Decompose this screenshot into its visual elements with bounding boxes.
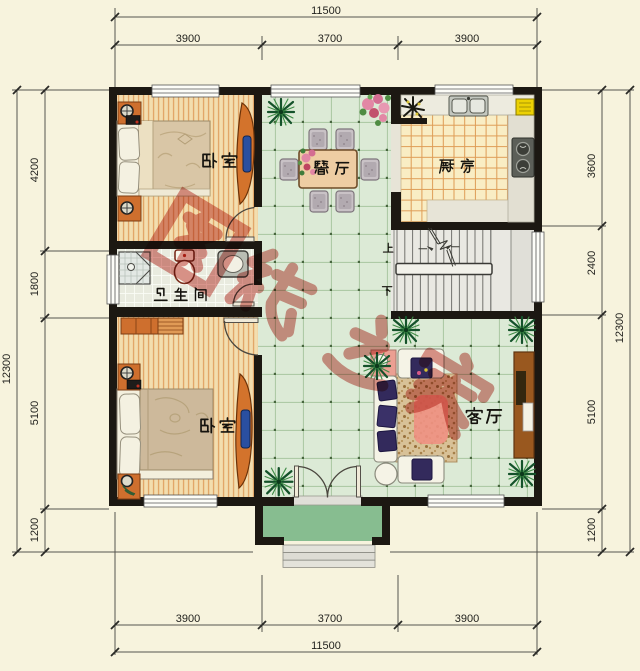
svg-text:5100: 5100 (586, 400, 598, 424)
svg-text:1200: 1200 (586, 518, 598, 542)
svg-text:11500: 11500 (311, 640, 341, 652)
svg-text:1200: 1200 (29, 518, 41, 542)
svg-text:3900: 3900 (455, 613, 479, 625)
svg-text:1800: 1800 (29, 272, 41, 296)
svg-text:3900: 3900 (176, 613, 200, 625)
svg-text:3700: 3700 (318, 33, 342, 45)
svg-text:5100: 5100 (29, 401, 41, 425)
svg-text:2400: 2400 (586, 251, 598, 275)
svg-text:12300: 12300 (614, 313, 626, 344)
svg-text:3600: 3600 (586, 154, 598, 178)
svg-text:12300: 12300 (1, 354, 13, 385)
svg-text:3700: 3700 (318, 613, 342, 625)
svg-text:11500: 11500 (311, 5, 341, 17)
svg-text:3900: 3900 (455, 33, 479, 45)
svg-text:4200: 4200 (29, 158, 41, 182)
svg-text:3900: 3900 (176, 33, 200, 45)
